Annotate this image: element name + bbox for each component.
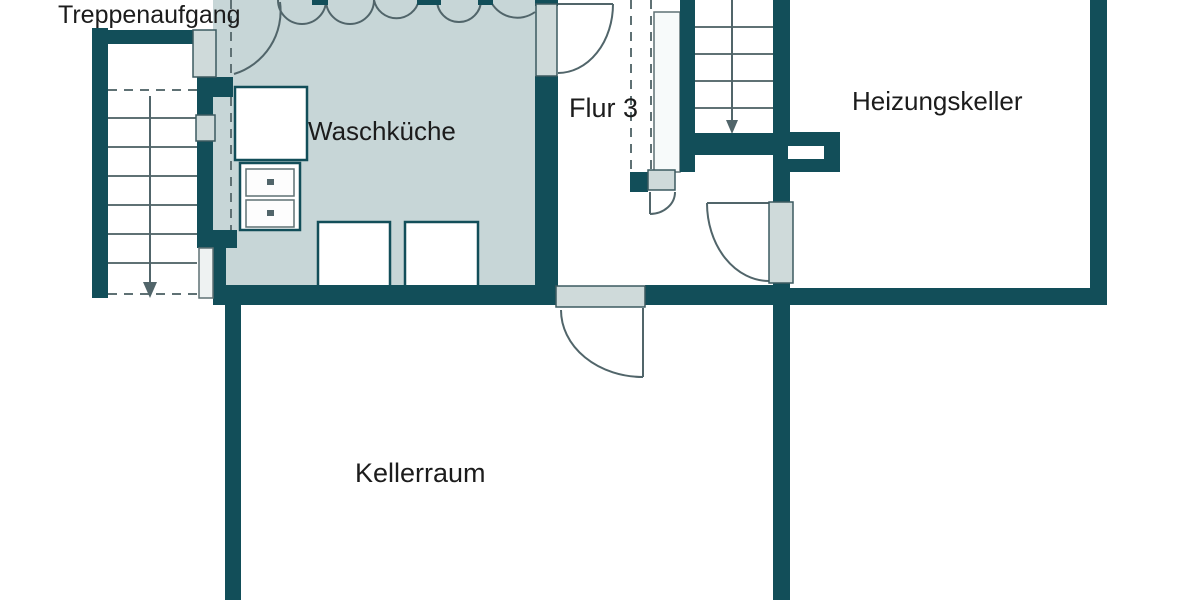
room-label-flur: Flur 3	[569, 94, 638, 124]
door-waschkueche-flur	[558, 4, 613, 73]
door-panel-kellerraum	[556, 286, 645, 307]
treppenaufgang-stairs	[108, 90, 197, 298]
wall-junction	[197, 77, 233, 97]
door-stair-landing	[650, 192, 675, 214]
wall-waschkueche-flur	[535, 76, 558, 290]
stair-down-arrow	[143, 96, 157, 298]
chimney	[788, 132, 840, 172]
door-panel-waschkueche-flur	[536, 4, 557, 76]
door-leaf	[478, 0, 493, 5]
washing-appliance	[240, 163, 300, 230]
wall-heizungskeller-bottom	[790, 288, 1107, 305]
wall-heizungskeller-right	[1090, 0, 1107, 305]
door-leaf	[417, 0, 441, 5]
door-flur-heizungskeller	[707, 203, 769, 281]
room-label-waschkueche: Waschküche	[308, 117, 456, 146]
wall-main-horizontal	[213, 285, 556, 305]
wall-heizungskeller-left	[773, 0, 790, 202]
wall-treppenaufgang-left	[92, 28, 108, 298]
counter-box	[405, 222, 478, 292]
wall-heizungskeller-left	[773, 283, 790, 305]
door-swing-arc	[707, 203, 769, 281]
room-label-heizungskeller: Heizungskeller	[852, 87, 1023, 116]
door-flur-kellerraum	[561, 308, 643, 377]
wall-kellerraum-right	[773, 305, 790, 600]
understair-wall	[654, 12, 680, 172]
wall-stub	[630, 172, 648, 192]
wall-junction	[197, 230, 237, 248]
door-swing-arc	[561, 310, 643, 377]
floor-plan: Treppenaufgang Waschküche Flur 3 Heizung…	[0, 0, 1200, 600]
door-swing-arc	[558, 4, 613, 73]
wall-treppenaufgang-top	[92, 30, 194, 44]
door-panel-heizungskeller	[769, 202, 793, 283]
wall-kellerraum-left	[225, 305, 241, 600]
counter-box	[318, 222, 390, 292]
stair-down-arrow	[726, 0, 738, 134]
wall-stair-bottom	[680, 133, 788, 155]
door-swing-arc	[650, 192, 675, 214]
wall-opening-panel	[196, 115, 215, 141]
counter-box	[235, 87, 307, 160]
understair-wall	[199, 248, 213, 298]
door-panel-stair-landing	[648, 170, 675, 190]
room-label-treppenaufgang: Treppenaufgang	[58, 2, 241, 30]
wall-main-horizontal	[645, 285, 790, 305]
door-leaf	[312, 0, 328, 5]
door-panel-treppenaufgang	[193, 30, 216, 77]
room-label-kellerraum: Kellerraum	[355, 459, 486, 489]
